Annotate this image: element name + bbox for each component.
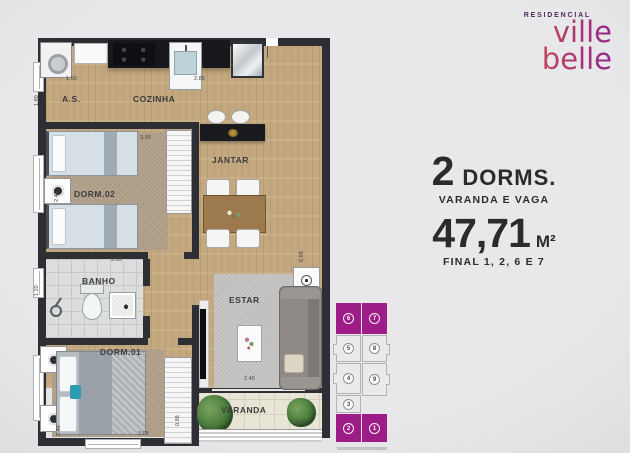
wall-banho-right-b <box>143 316 150 338</box>
keyplan-right-column: 7 8 9 1 <box>362 303 387 442</box>
bar-stool <box>231 110 250 124</box>
sideboard <box>200 124 265 141</box>
area-unit: M² <box>536 232 556 252</box>
dining-chair <box>206 229 230 248</box>
keyplan-unit-3: 3 <box>336 395 361 413</box>
brand-logo: RESIDENCIAL ville belle <box>502 12 612 73</box>
finals-line: FINAL 1, 2, 6 E 7 <box>398 256 590 268</box>
keyplan-unit-8: 8 <box>362 335 387 362</box>
wall-center-lower <box>192 305 199 446</box>
room-label-dorm2: DORM.02 <box>74 189 115 199</box>
wall-banho-right-a <box>143 259 150 286</box>
kitchen-cabinet <box>74 43 108 64</box>
dim-as-height: 1.60 <box>34 95 40 106</box>
room-label-varanda: VARANDA <box>221 405 266 415</box>
washing-machine <box>40 42 72 78</box>
entry-door-opening <box>266 38 278 46</box>
tv <box>200 309 206 379</box>
wardrobe-dorm2 <box>166 130 192 214</box>
single-bed <box>46 204 138 249</box>
wall-dorm2-hall-a <box>38 252 148 259</box>
dim-dorm2-height: 2.43 <box>54 191 60 202</box>
cooktop <box>113 43 155 66</box>
wardrobe-dorm1 <box>164 357 192 444</box>
room-label-banho: BANHO <box>82 276 116 286</box>
dim-right-height: 6.88 <box>299 251 305 262</box>
coffee-table <box>237 325 262 362</box>
keyplan: 6 5 4 3 2 7 8 9 1 <box>336 303 387 442</box>
features-line: VARANDA E VAGA <box>398 194 590 206</box>
keyplan-unit-2: 2 <box>336 414 361 442</box>
fridge <box>231 42 264 78</box>
dim-banho-width: 2.03 <box>111 257 122 263</box>
dining-chair <box>236 229 260 248</box>
room-label-estar: ESTAR <box>229 295 260 305</box>
room-label-dorm1: DORM.01 <box>100 347 141 357</box>
entry-door-leaf <box>267 46 268 58</box>
keyplan-caption <box>337 447 387 450</box>
dim-varanda-width: 2.40 <box>295 420 306 426</box>
brand-name-line2: belle <box>502 46 612 73</box>
wall-right <box>322 46 330 438</box>
window-dorm2 <box>33 155 44 213</box>
room-label-cozinha: COZINHA <box>133 94 175 104</box>
bar-stool <box>207 110 226 124</box>
dim-estar-width: 2.40 <box>244 376 255 382</box>
keyplan-unit-5: 5 <box>336 335 361 362</box>
dim-cozinha-width: 2.85 <box>194 76 205 82</box>
wall-banho-dorm1-b <box>178 338 199 345</box>
keyplan-unit-7: 7 <box>362 303 387 334</box>
dim-dorm1-height: 2.40 <box>56 425 62 436</box>
area-value: 47,71 <box>432 212 530 254</box>
balcony-railing <box>199 429 322 442</box>
keyplan-unit-4: 4 <box>336 363 361 394</box>
double-bed <box>56 351 146 435</box>
unit-info: 2 DORMS. VARANDA E VAGA 47,71 M² FINAL 1… <box>398 150 590 268</box>
dim-dorm2-width: 3.55 <box>140 135 151 141</box>
dining-table <box>203 195 266 233</box>
dim-banho-height: 1.20 <box>34 285 40 296</box>
wall-kitchen-dorm2 <box>46 122 199 129</box>
bathroom-vanity <box>109 292 136 319</box>
wall-banho-dorm1-a <box>38 338 148 345</box>
dorms-label: DORMS. <box>462 165 556 191</box>
dim-as-width: 1.50 <box>66 76 77 82</box>
window-dorm1-bottom <box>85 439 141 449</box>
keyplan-unit-9: 9 <box>362 363 387 396</box>
dim-dorm1-width: 3.05 <box>138 431 149 437</box>
dim-varanda-height: 0.88 <box>175 415 181 426</box>
room-label-jantar: JANTAR <box>212 155 249 165</box>
keyplan-gap <box>362 397 387 413</box>
wall-center-upper <box>192 129 199 252</box>
marketing-floorplan-page: A.S. COZINHA JANTAR DORM.02 BANHO ESTAR … <box>0 0 630 453</box>
shower <box>48 295 62 319</box>
single-bed <box>46 131 138 176</box>
room-label-as: A.S. <box>62 94 81 104</box>
kitchen-sink <box>169 42 202 90</box>
toilet <box>80 284 104 320</box>
keyplan-left-column: 6 5 4 3 2 <box>336 303 361 442</box>
keyplan-unit-1: 1 <box>362 414 387 442</box>
sofa <box>279 286 322 390</box>
keyplan-unit-6: 6 <box>336 303 361 334</box>
wall-dorm2-hall-b <box>184 252 199 259</box>
dorms-count: 2 <box>432 150 454 192</box>
